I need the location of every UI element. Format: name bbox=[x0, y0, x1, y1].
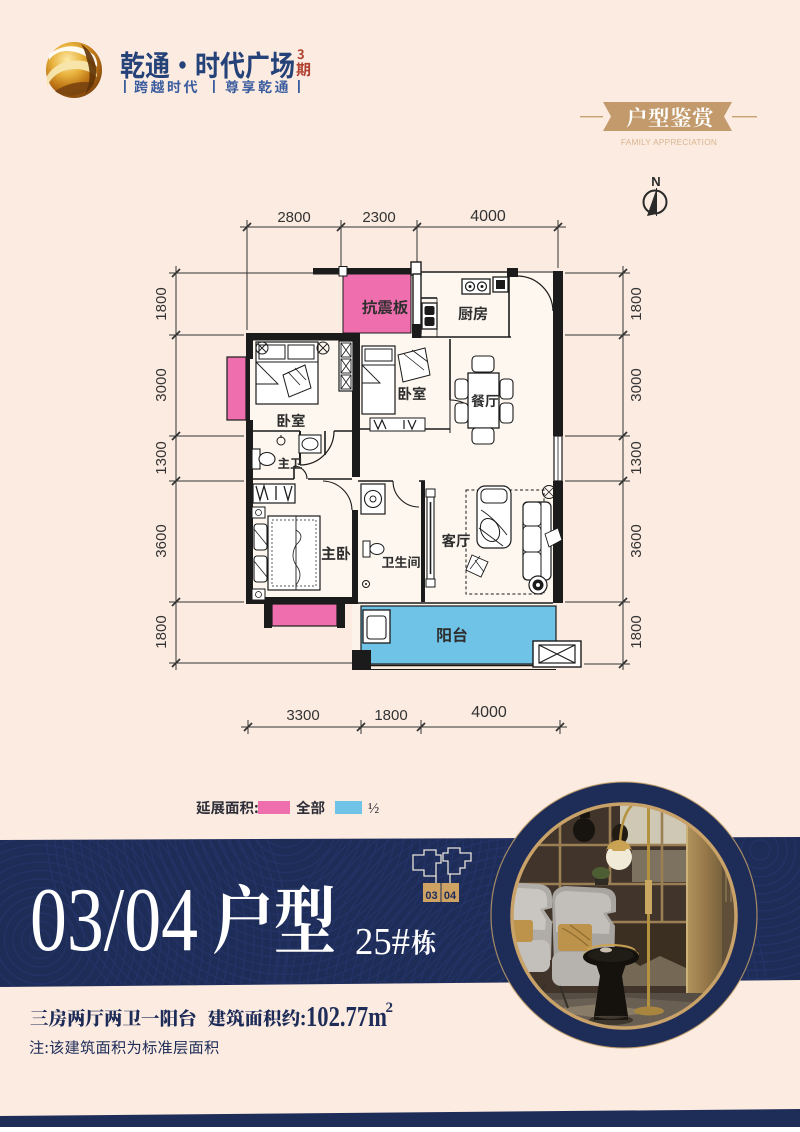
svg-text:3300: 3300 bbox=[286, 707, 319, 724]
svg-text:03: 03 bbox=[425, 890, 437, 902]
svg-text:2: 2 bbox=[386, 1000, 394, 1016]
svg-text:1800: 1800 bbox=[628, 615, 645, 648]
svg-text:3600: 3600 bbox=[628, 524, 645, 557]
svg-text:3000: 3000 bbox=[628, 368, 645, 401]
svg-text:03/04: 03/04 bbox=[30, 869, 198, 970]
svg-text:1800: 1800 bbox=[374, 707, 407, 724]
svg-text:4000: 4000 bbox=[470, 208, 506, 225]
svg-text:1300: 1300 bbox=[628, 441, 645, 474]
svg-text:N: N bbox=[651, 174, 660, 189]
svg-text:1300: 1300 bbox=[153, 441, 170, 474]
svg-text:04: 04 bbox=[444, 890, 457, 902]
svg-text:4000: 4000 bbox=[471, 704, 507, 721]
svg-text:25#: 25# bbox=[355, 921, 410, 963]
svg-text:3600: 3600 bbox=[153, 524, 170, 557]
svg-text:3000: 3000 bbox=[153, 368, 170, 401]
svg-text:102.77m: 102.77m bbox=[306, 1001, 387, 1033]
svg-text:1800: 1800 bbox=[628, 287, 645, 320]
svg-text:2300: 2300 bbox=[362, 209, 395, 226]
svg-text:½: ½ bbox=[368, 801, 379, 817]
svg-text:FAMILY APPRECIATION: FAMILY APPRECIATION bbox=[621, 138, 717, 147]
svg-text:1800: 1800 bbox=[153, 287, 170, 320]
svg-text:1800: 1800 bbox=[153, 615, 170, 648]
svg-text:2800: 2800 bbox=[277, 209, 310, 226]
